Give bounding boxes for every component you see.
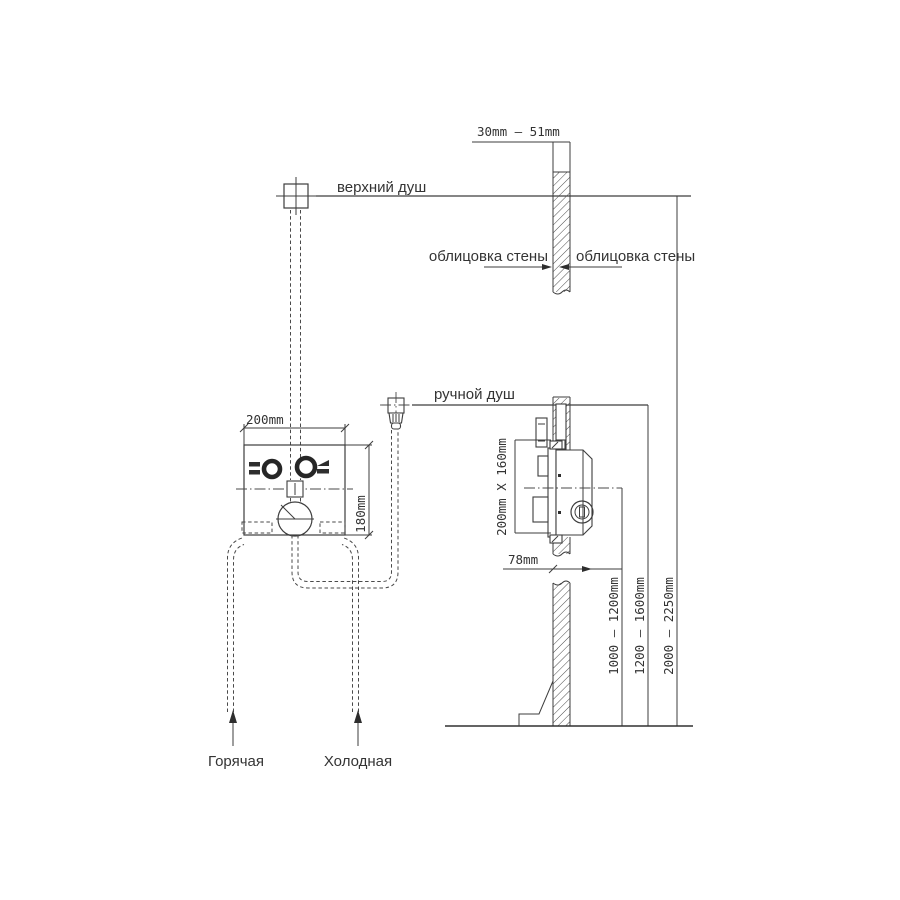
mixer-width-text: 200mm xyxy=(246,412,284,427)
front-view: верхний душ 200mm 180mm xyxy=(208,177,691,770)
box-depth-text: 78mm xyxy=(508,552,538,567)
hand-shower-range-text: 1200 – 1600mm xyxy=(632,577,647,675)
hand-shower-label: ручной душ xyxy=(434,386,515,403)
mixer-width-dimension: 200mm xyxy=(240,412,349,445)
riser-pipe xyxy=(291,210,301,480)
hand-shower-icon xyxy=(317,460,329,474)
center-union xyxy=(287,481,303,497)
mixer-height-range-text: 1000 – 1200mm xyxy=(606,577,621,675)
cold-supply: Холодная xyxy=(324,710,392,770)
upper-shower-label: верхний душ xyxy=(337,179,426,196)
tray-profile xyxy=(519,681,553,726)
box-face-text: 200mm X 160mm xyxy=(494,438,509,536)
cladding-thickness-dimension: 30mm – 51mm xyxy=(472,124,570,142)
cold-label: Холодная xyxy=(324,753,392,770)
temperature-control xyxy=(276,502,314,536)
upper-shower-head xyxy=(276,177,316,215)
right-port xyxy=(297,458,315,476)
wall-cladding-left-label: облицовка стены xyxy=(429,248,548,265)
hand-shower-outlet xyxy=(380,392,412,429)
mount-slot-left xyxy=(242,522,272,533)
hot-label: Горячая xyxy=(208,753,264,770)
side-view: 30mm – 51mm обл xyxy=(429,124,695,726)
diagram-canvas: верхний душ 200mm 180mm xyxy=(0,0,900,900)
valve-side-view xyxy=(524,404,622,543)
overhead-shower-icon xyxy=(249,462,260,475)
upper-shower-range-text: 2000 – 2250mm xyxy=(661,577,676,675)
mounting-plate xyxy=(548,448,556,537)
hot-supply: Горячая xyxy=(208,710,264,770)
mixer-front-body xyxy=(236,445,353,536)
mixer-height-dimension: 180mm xyxy=(345,441,373,539)
cladding-thickness-text: 30mm – 51mm xyxy=(477,124,560,139)
cold-arrow xyxy=(354,710,362,723)
box-depth-dimension: 78mm xyxy=(503,552,622,573)
left-port xyxy=(264,461,280,477)
mixer-height-text: 180mm xyxy=(353,495,368,533)
mount-slot-right xyxy=(320,522,345,533)
height-dimensions: 1000 – 1200mm 1200 – 1600mm 2000 – 2250m… xyxy=(606,196,677,726)
installation-diagram: верхний душ 200mm 180mm xyxy=(0,0,900,900)
hot-arrow xyxy=(229,710,237,723)
